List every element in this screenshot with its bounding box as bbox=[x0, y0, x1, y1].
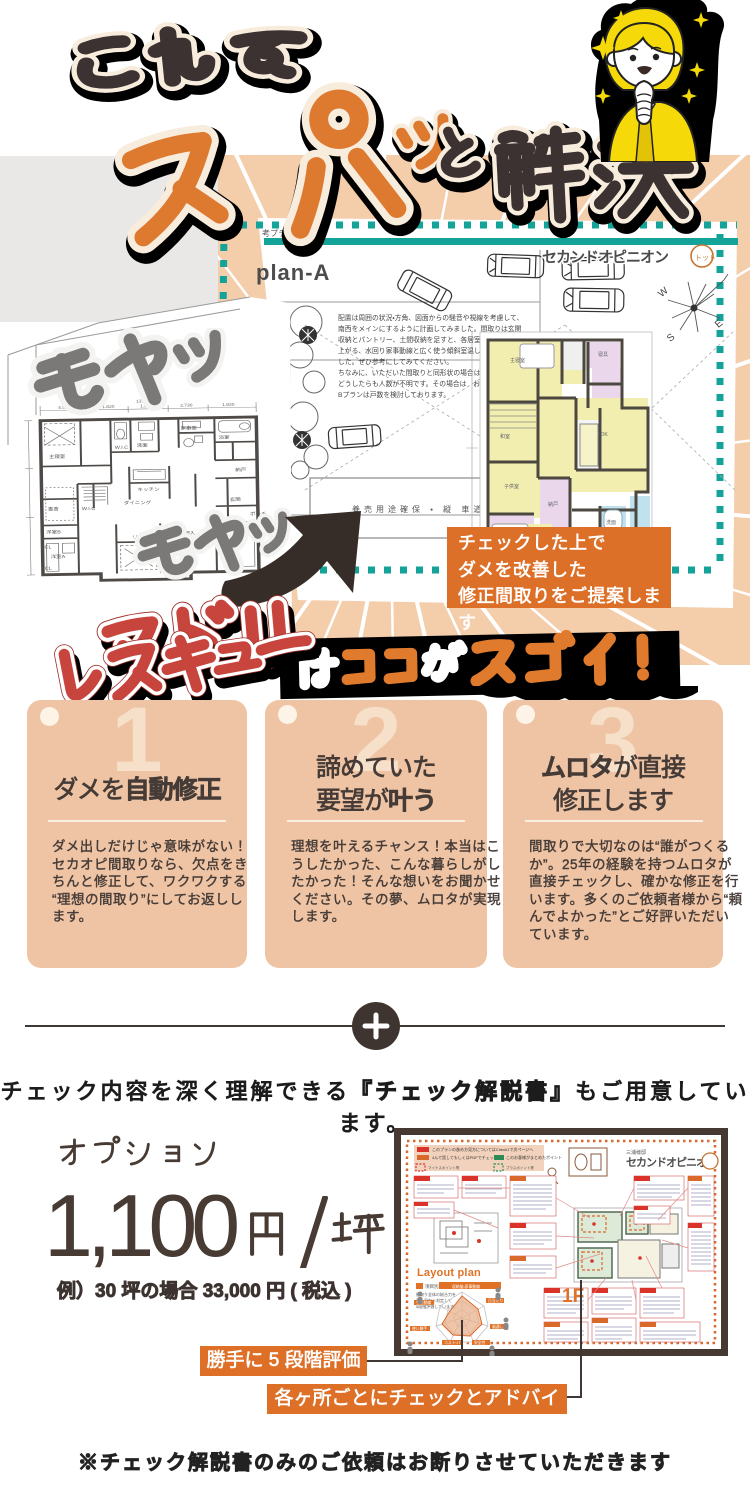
svg-text:和室: 和室 bbox=[500, 433, 510, 440]
svg-text:LDK: LDK bbox=[598, 432, 608, 438]
svg-text:三浦様邸: 三浦様邸 bbox=[626, 1149, 646, 1156]
svg-text:このプランの進め方見方についてはCheck1で次ページへ: このプランの進め方見方についてはCheck1で次ページへ bbox=[432, 1146, 533, 1152]
svg-text:洋室A: 洋室A bbox=[51, 554, 66, 561]
svg-text:Bプランは戸数を検討しております。: Bプランは戸数を検討しております。 bbox=[338, 390, 450, 399]
svg-text:4んで話してもしくはPDFでチェック: 4んで話してもしくはPDFでチェック bbox=[432, 1154, 498, 1160]
svg-text:配置は周囲の状況・方角、図面からの騒音や視線を考慮して、: 配置は周囲の状況・方角、図面からの騒音や視線を考慮して、 bbox=[338, 313, 523, 322]
svg-text:W.I.C: W.I.C bbox=[115, 445, 129, 451]
svg-text:W.I.C: W.I.C bbox=[82, 506, 96, 512]
svg-text:納戸: 納戸 bbox=[548, 501, 558, 508]
svg-text:寝具: 寝具 bbox=[598, 351, 608, 358]
svg-text:洋室B: 洋室B bbox=[46, 529, 61, 536]
svg-text:家事室: 家事室 bbox=[180, 425, 197, 432]
svg-text:主寝室: 主寝室 bbox=[510, 357, 525, 364]
svg-text:CL: CL bbox=[44, 545, 51, 551]
svg-text:洗面: 洗面 bbox=[137, 442, 148, 448]
svg-text:した。ぜひ参考にしてみてください。: した。ぜひ参考にしてみてください。 bbox=[338, 357, 453, 366]
svg-text:浴室: 浴室 bbox=[219, 434, 230, 440]
svg-text:納戸: 納戸 bbox=[235, 467, 246, 473]
svg-text:主寝室: 主寝室 bbox=[49, 453, 66, 460]
svg-text:書斎: 書斎 bbox=[48, 506, 59, 512]
svg-text:このお客様がまとめたポイント: このお客様がまとめたポイント bbox=[506, 1154, 562, 1160]
svg-text:CL: CL bbox=[45, 566, 52, 572]
svg-text:マイナスポイント等: マイナスポイント等 bbox=[428, 1165, 460, 1170]
svg-text:プラスポイント等: プラスポイント等 bbox=[506, 1165, 534, 1170]
svg-text:キッチン: キッチン bbox=[137, 487, 159, 493]
svg-text:洗面: 洗面 bbox=[606, 519, 616, 526]
svg-text:子供室: 子供室 bbox=[504, 483, 519, 490]
